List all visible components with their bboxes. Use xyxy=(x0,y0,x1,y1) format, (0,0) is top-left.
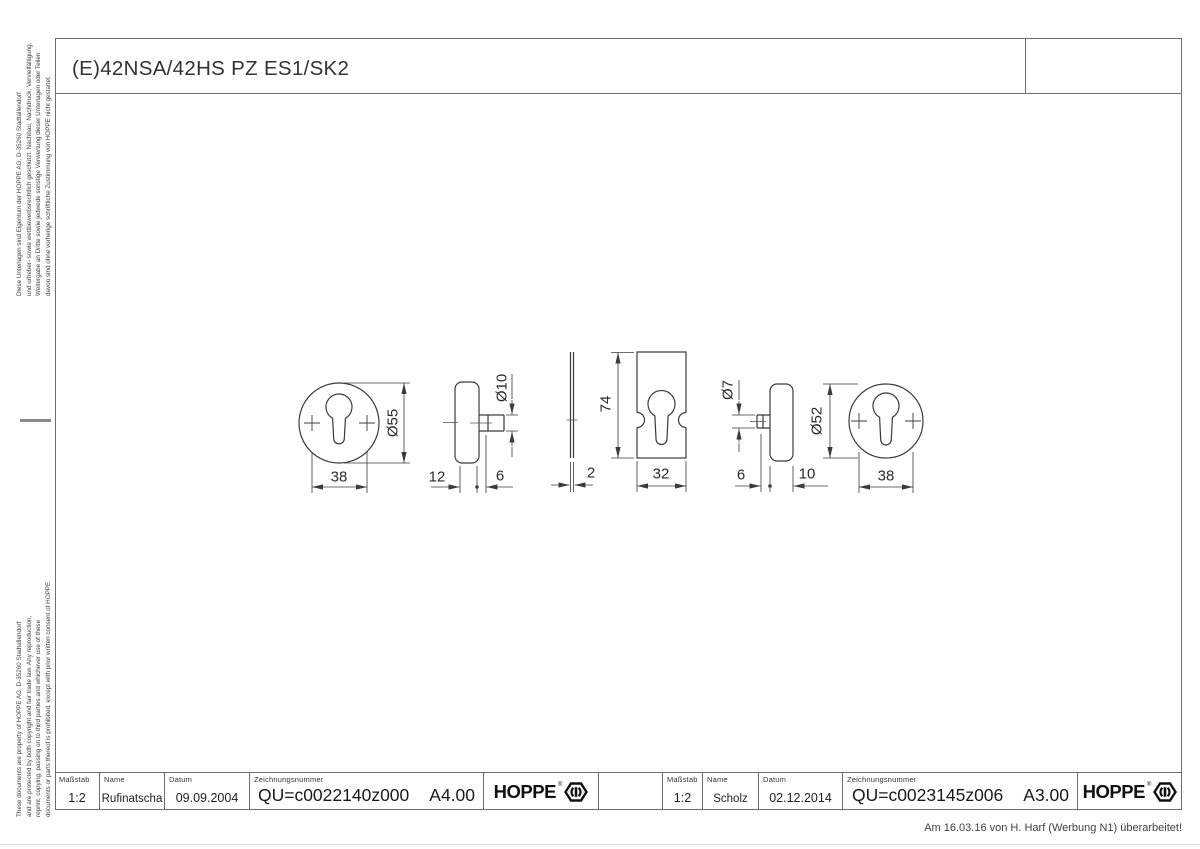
revision-value: A4.00 xyxy=(429,785,475,806)
title-block-scale-cell-1: Maßstab 1:2 xyxy=(55,773,99,810)
title-block-date-cell-1: Datum 09.09.2004 xyxy=(164,773,249,810)
drawing-sheet: Diese Unterlagen sind Eigentum der HOPPE… xyxy=(0,0,1200,849)
registered-mark: ® xyxy=(558,782,562,788)
title-block-logo-cell-2: HOPPE® xyxy=(1077,773,1182,810)
technical-drawing-canvas xyxy=(0,0,1200,849)
title-block-drawingno-cell-2: Zeichnungsnummer QU=c0023145z006 A3.00 xyxy=(842,773,1077,810)
rosette-right-side-view xyxy=(770,384,793,461)
dim-label-plate-width: 32 xyxy=(653,466,670,483)
dim-label-rosette-right-thickness: 10 xyxy=(799,466,816,483)
centerlines xyxy=(443,420,766,423)
name-label: Name xyxy=(707,775,728,784)
scale-value: 1:2 xyxy=(55,791,99,805)
title-block-drawingno-cell-1: Zeichnungsnummer QU=c0022140z000 A4.00 xyxy=(249,773,483,810)
dim-label-plate-thickness: 2 xyxy=(587,465,595,482)
hoppe-logo: HOPPE® xyxy=(1083,781,1178,803)
title-block-logo-cell-1: HOPPE® xyxy=(483,773,598,810)
date-label: Datum xyxy=(763,775,786,784)
brand-name: HOPPE xyxy=(1083,781,1145,803)
drawing-number-value: QU=c0023145z006 xyxy=(852,785,1003,806)
dim-label-plate-height: 74 xyxy=(598,396,615,413)
keyhole-right xyxy=(873,393,899,445)
revision-value: A3.00 xyxy=(1023,785,1069,806)
name-value: Rufinatscha xyxy=(100,793,164,805)
dim-label-rosette-right-dia: Ø52 xyxy=(809,407,826,435)
title-block-name-cell-1: Name Rufinatscha xyxy=(99,773,164,810)
dim-label-pin-left-len: 6 xyxy=(496,468,504,485)
plate-side-view xyxy=(571,352,574,458)
dim-label-rosette-right-width: 38 xyxy=(878,468,895,485)
name-value: Scholz xyxy=(703,793,758,805)
dimension-dots xyxy=(475,484,772,489)
title-block-name-cell-2: Name Scholz xyxy=(702,773,758,810)
plate-notch-erase-left xyxy=(635,413,638,427)
registered-mark: ® xyxy=(1147,782,1151,788)
scale-value: 1:2 xyxy=(663,791,702,805)
brand-name: HOPPE xyxy=(494,781,556,803)
dim-label-pin-right-dia: Ø7 xyxy=(720,380,737,400)
drawing-number-label: Zeichnungsnummer xyxy=(254,775,323,784)
revision-note: Am 16.03.16 von H. Harf (Werbung N1) übe… xyxy=(924,822,1182,834)
dim-label-pin-right-len: 6 xyxy=(737,467,745,484)
hoppe-hexagon-icon xyxy=(1153,781,1177,803)
page-edge-line xyxy=(0,844,1200,845)
scale-label: Maßstab xyxy=(59,775,90,784)
dim-label-pin-left-dia: Ø10 xyxy=(494,374,511,402)
dim-label-rosette-left-dia: Ø55 xyxy=(385,409,402,437)
plate-notch-erase-right xyxy=(684,413,687,427)
scale-label: Maßstab xyxy=(667,775,698,784)
title-block-date-cell-2: Datum 02.12.2014 xyxy=(758,773,842,810)
hoppe-hexagon-icon xyxy=(564,781,588,803)
rosette-left-side-view xyxy=(455,382,479,463)
date-value: 09.09.2004 xyxy=(165,791,249,805)
keyhole-plate xyxy=(648,391,675,445)
name-label: Name xyxy=(104,775,125,784)
date-label: Datum xyxy=(169,775,192,784)
dim-label-rosette-left-thickness: 12 xyxy=(429,469,446,486)
drawing-number-value: QU=c0022140z000 xyxy=(258,785,409,806)
title-block-empty-cell xyxy=(598,773,662,810)
title-block-scale-cell-2: Maßstab 1:2 xyxy=(662,773,702,810)
date-value: 02.12.2014 xyxy=(759,791,842,805)
drawing-number-label: Zeichnungsnummer xyxy=(847,775,916,784)
dim-label-rosette-left-width: 38 xyxy=(331,469,348,486)
keyhole-left xyxy=(326,394,352,444)
hoppe-logo: HOPPE® xyxy=(494,781,589,803)
